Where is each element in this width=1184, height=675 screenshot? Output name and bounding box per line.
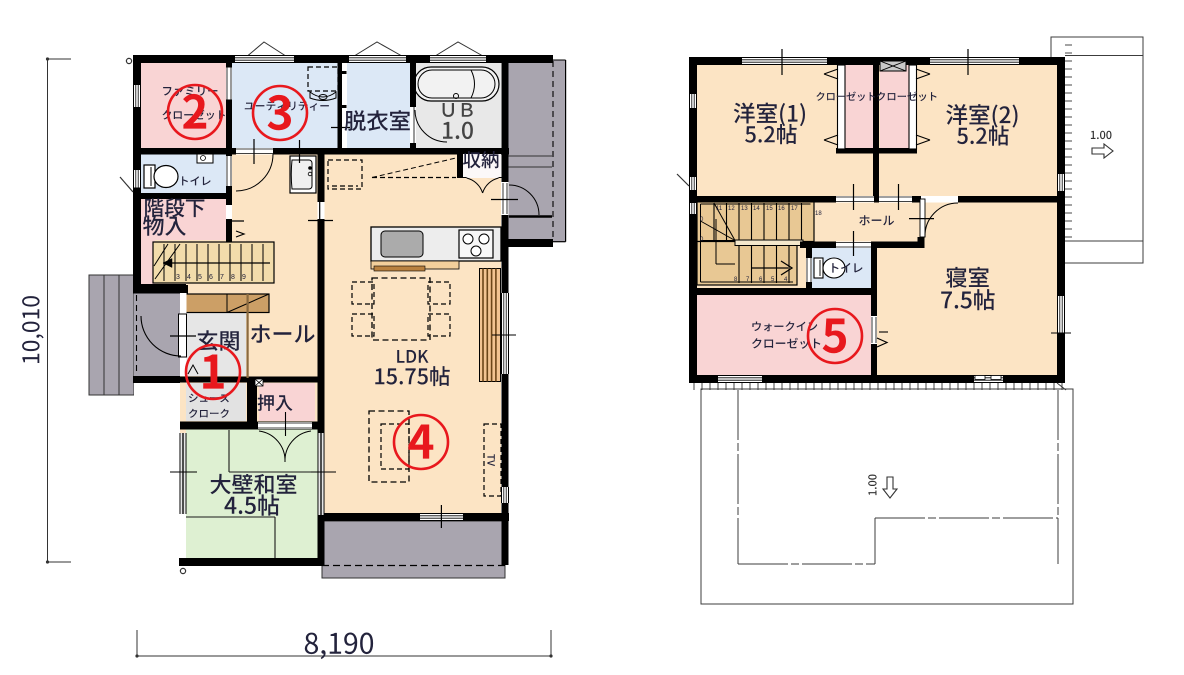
svg-text:11: 11 (716, 206, 723, 212)
svg-text:9: 9 (242, 274, 246, 281)
svg-text:3: 3 (176, 274, 180, 281)
svg-text:12: 12 (728, 206, 735, 212)
svg-text:6: 6 (209, 274, 213, 281)
svg-text:15: 15 (766, 206, 773, 212)
svg-text:4: 4 (187, 274, 191, 281)
svg-text:16: 16 (778, 206, 785, 212)
svg-text:5: 5 (198, 274, 202, 281)
svg-text:13: 13 (741, 206, 748, 212)
svg-text:14: 14 (753, 206, 760, 212)
svg-text:17: 17 (791, 206, 798, 212)
svg-text:8: 8 (231, 274, 235, 281)
svg-text:7: 7 (220, 274, 224, 281)
svg-text:18: 18 (815, 211, 822, 217)
